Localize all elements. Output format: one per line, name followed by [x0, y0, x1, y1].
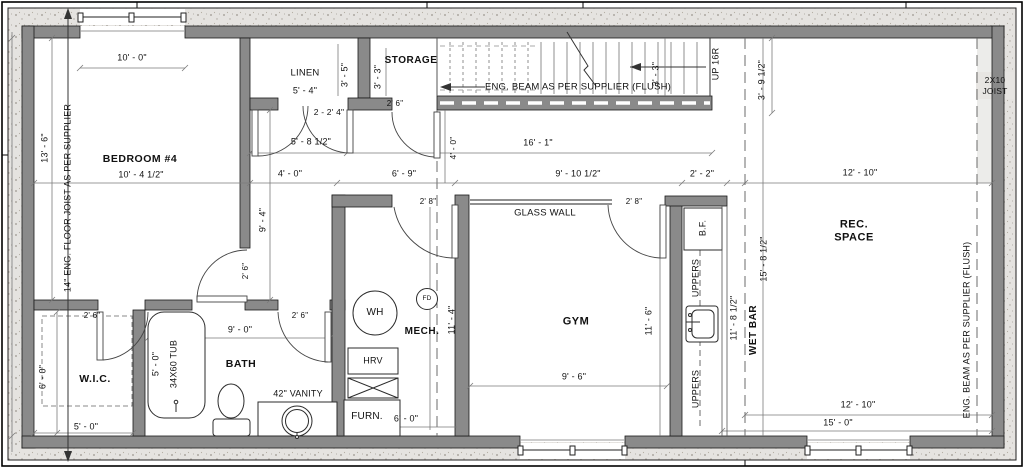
dim-gym-width-top: 9' - 10 1/2" — [555, 170, 600, 179]
dim-bedroom-height: 13' - 6" — [41, 133, 50, 163]
dim-tub-length: 5' - 0" — [152, 352, 161, 376]
dim-bath-width: 9' - 0" — [228, 326, 252, 335]
dim-linen-depth: 3' - 5" — [341, 63, 350, 87]
note-2x10-joist-2: JOIST — [982, 87, 1007, 96]
toilet-tank — [213, 419, 250, 436]
note-hrv: HRV — [363, 357, 382, 366]
dim-bedroom-door: 2' 6" — [242, 263, 250, 280]
dim-furn-width: 6' - 0" — [394, 415, 418, 424]
room-label-linen: LINEN — [291, 68, 320, 78]
dim-double-door: 2 - 2' 4" — [314, 108, 345, 117]
dim-stairs-width: 3' - 3" — [652, 62, 661, 86]
dim-hall-width: 4' - 0" — [278, 170, 302, 179]
dim-wic-width: 5' - 0" — [74, 423, 98, 432]
toilet-bowl — [218, 384, 244, 418]
dim-stairs-offset: 3' - 9 1/2" — [758, 60, 767, 100]
note-furnace: FURN. — [351, 412, 383, 422]
room-label-bedroom: BEDROOM #4 — [103, 154, 177, 165]
room-label-bath: BATH — [226, 359, 256, 370]
dim-hall-6-9: 6' - 9" — [392, 170, 416, 179]
note-floor-joist: 14" ENG. FLOOR JOIST AS PER SUPPLIER — [64, 104, 73, 292]
room-label-wic: W.I.C. — [79, 374, 111, 385]
dim-bath-door: 2' 6" — [292, 312, 309, 320]
dim-mech-door: 2' 8" — [420, 198, 437, 206]
note-bar-fridge: B.F. — [699, 220, 708, 236]
room-label-gym: GYM — [563, 317, 590, 328]
dim-hall-depth: 4' - 0" — [449, 136, 458, 159]
dim-gym-door: 2' 8" — [626, 198, 643, 206]
dim-wic-height: 6' - 0" — [39, 365, 48, 389]
dim-bedroom-width: 10' - 4 1/2" — [118, 171, 163, 180]
room-label-mech: MECH. — [405, 327, 440, 337]
dim-linen-width: 5' - 4" — [293, 87, 317, 96]
note-eng-beam-right: ENG. BEAM AS PER SUPPLIER (FLUSH) — [963, 242, 972, 419]
dim-rec-width-top: 12' - 10" — [843, 169, 878, 178]
dim-wetbar-full-height: 15' - 8 1/2" — [760, 236, 769, 281]
room-label-storage: STORAGE — [385, 56, 438, 66]
note-uppers-top: UPPERS — [692, 259, 701, 297]
note-2x10-joist-1: 2X10 — [985, 76, 1006, 85]
dim-gym-width: 9' - 6" — [562, 373, 586, 382]
note-vanity: 42" VANITY — [273, 390, 323, 399]
dim-wetbar-height: 11' - 8 1/2" — [730, 296, 739, 341]
glass-wall-lines — [470, 200, 612, 204]
dim-wetbar-width-top: 2' - 2" — [690, 170, 714, 179]
room-label-rec-1: REC. — [840, 220, 868, 231]
dim-storage-door: 2' 6" — [387, 100, 404, 108]
dim-hall-9-4: 9' - 4" — [259, 208, 268, 232]
dim-rec-width-bottom: 12' - 10" — [841, 401, 876, 410]
note-water-heater: WH — [366, 308, 383, 318]
room-label-wet-bar: WET BAR — [749, 305, 759, 355]
dim-bedroom-window: 10' - 0" — [117, 54, 147, 63]
floorplan-basement: 10' - 0" BEDROOM #4 10' - 4 1/2" 13' - 6… — [0, 0, 1024, 468]
dim-wic-door: 2' 6" — [84, 312, 101, 320]
dim-mech-height: 11' - 4" — [448, 306, 457, 335]
dim-rec-full-width: 15' - 0" — [823, 419, 853, 428]
dim-hall-16: 16' - 1" — [523, 139, 553, 148]
dim-storage-depth: 3' - 3" — [374, 65, 383, 89]
note-floor-drain: FD — [422, 296, 431, 303]
note-glass-wall: GLASS WALL — [514, 208, 576, 218]
note-up-16r: UP 16R — [712, 48, 721, 81]
note-eng-beam-stairs: ENG. BEAM AS PER SUPPLIER (FLUSH) — [485, 82, 671, 92]
dim-hall-opening: 5' - 8 1/2" — [291, 138, 331, 147]
dim-gym-height: 11' - 6" — [645, 307, 654, 336]
note-uppers-bottom: UPPERS — [692, 370, 701, 408]
room-label-rec-2: SPACE — [834, 233, 874, 244]
note-tub: 34X60 TUB — [170, 340, 179, 388]
